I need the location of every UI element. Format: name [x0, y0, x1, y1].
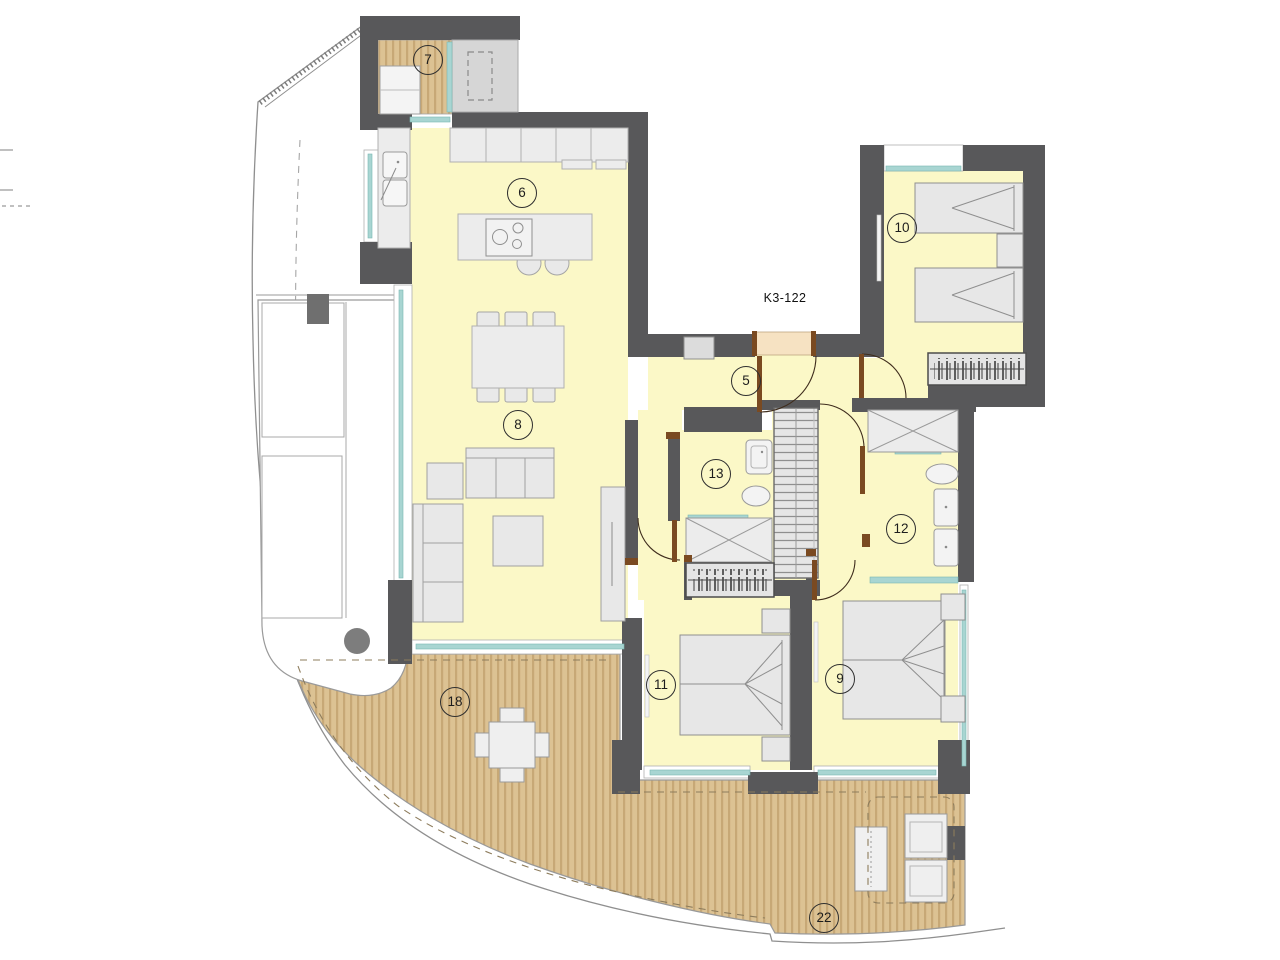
- unit-label: K3-122: [745, 291, 825, 305]
- nightstand-11b: [762, 737, 790, 761]
- hall-console: [684, 337, 714, 359]
- room-label-12: 12: [886, 514, 916, 544]
- room-label-22: 22: [809, 903, 839, 933]
- bedroom-9-door-leaf: [812, 560, 817, 600]
- room-label-6: 6: [507, 178, 537, 208]
- wardrobe-bedroom-11: [686, 563, 774, 597]
- room-label-11: 11: [646, 670, 676, 700]
- terrace-table: [489, 722, 535, 768]
- coffee-table: [493, 516, 543, 566]
- floor-plan-canvas: K3-122 7 6 5 8 10 13 12 11 9 18 22: [0, 0, 1280, 960]
- kitchen-sink: [383, 152, 407, 178]
- tv-unit: [601, 487, 625, 621]
- dining-set: [472, 312, 564, 402]
- bath-12-door-leaf: [860, 446, 865, 494]
- bed-11: [680, 635, 790, 735]
- room-label-13: 13: [701, 459, 731, 489]
- facade-pillar: [307, 294, 329, 324]
- column: [344, 628, 370, 654]
- nightstand-9b: [941, 696, 965, 722]
- wardrobe-bedroom-10: [928, 353, 1026, 385]
- lounger-a: [905, 814, 947, 858]
- room-label-7: 7: [413, 45, 443, 75]
- kitchen-counter-west: [378, 128, 410, 248]
- sill-mark-9: [814, 622, 818, 682]
- curved-facade-feature: [256, 294, 410, 696]
- armchair: [427, 463, 463, 499]
- floor-plan-drawing: [0, 0, 1280, 960]
- room-label-5: 5: [731, 366, 761, 396]
- bed-10a: [915, 183, 1023, 233]
- corridor-right-floor: [820, 410, 862, 560]
- room-label-8: 8: [503, 410, 533, 440]
- sofa-2: [413, 504, 463, 622]
- room-label-9: 9: [825, 664, 855, 694]
- bedroom-10-door-leaf: [859, 354, 864, 398]
- nightstand-11a: [762, 609, 790, 633]
- service-shaft: [452, 40, 518, 112]
- dining-table: [472, 326, 564, 388]
- nightstand-9a: [941, 594, 965, 620]
- nightstand-10: [997, 234, 1023, 267]
- toilet-13: [742, 486, 770, 506]
- washbasin-13: [746, 440, 772, 474]
- bath-13-door-leaf: [672, 520, 677, 562]
- sofa: [466, 448, 554, 498]
- bed-10b: [915, 268, 1023, 322]
- bed-9: [843, 601, 945, 719]
- washer: [380, 66, 420, 114]
- room-label-18: 18: [440, 687, 470, 717]
- room-label-10: 10: [887, 213, 917, 243]
- kitchen-island: [458, 214, 592, 260]
- sill-mark-10: [877, 215, 881, 281]
- toilet-12: [926, 464, 958, 484]
- entry-door-panel: [755, 332, 813, 355]
